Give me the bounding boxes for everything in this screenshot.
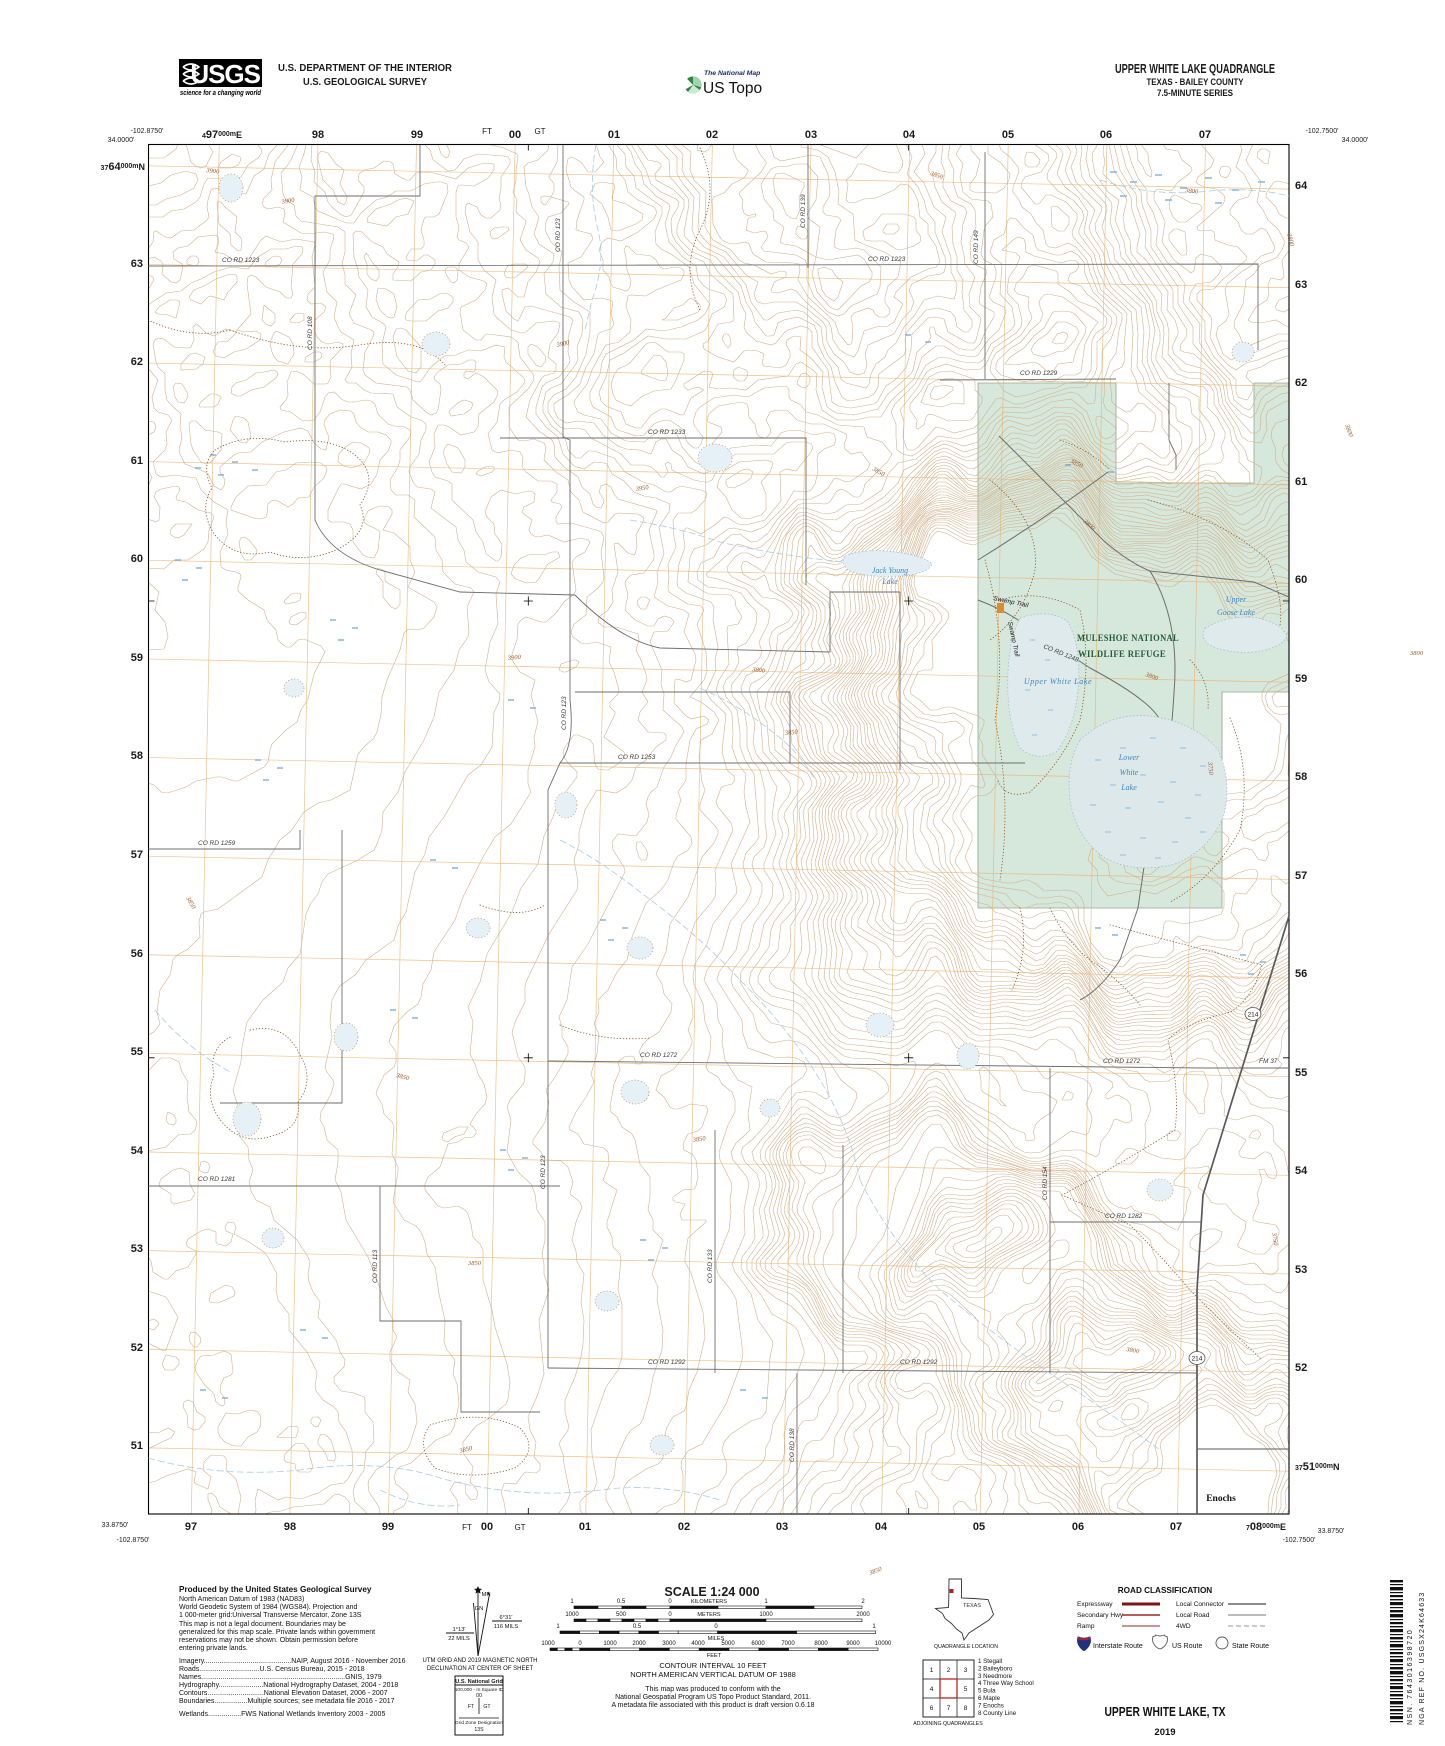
svg-text:58: 58 xyxy=(1295,771,1307,783)
svg-text:State Route: State Route xyxy=(1232,1643,1269,1650)
svg-text:0.5: 0.5 xyxy=(633,1624,642,1630)
svg-text:U.S. GEOLOGICAL SURVEY: U.S. GEOLOGICAL SURVEY xyxy=(303,77,427,88)
svg-text:05: 05 xyxy=(973,1521,985,1533)
svg-text:Ramp: Ramp xyxy=(1077,1623,1095,1630)
svg-text:CO RD 1282: CO RD 1282 xyxy=(1105,1213,1143,1220)
svg-text:CO RD 1292: CO RD 1292 xyxy=(648,1359,686,1366)
svg-text:North American Datum of 1983 (: North American Datum of 1983 (NAD83) xyxy=(179,1596,304,1603)
svg-text:1: 1 xyxy=(930,1667,934,1674)
svg-text:CO RD 113: CO RD 113 xyxy=(372,1250,379,1283)
svg-text:DECLINATION AT CENTER OF SHEET: DECLINATION AT CENTER OF SHEET xyxy=(427,1666,534,1672)
svg-text:1 000-meter grid:Universal Tra: 1 000-meter grid:Universal Transverse Me… xyxy=(179,1612,362,1619)
svg-text:CO RD 149: CO RD 149 xyxy=(973,230,980,264)
svg-text:00: 00 xyxy=(509,129,521,141)
svg-text:59: 59 xyxy=(1295,673,1307,685)
svg-text:500: 500 xyxy=(616,1612,627,1618)
svg-text:7.5-MINUTE SERIES: 7.5-MINUTE SERIES xyxy=(1157,88,1233,99)
svg-text:3800: 3800 xyxy=(1409,650,1424,657)
svg-text:07: 07 xyxy=(1170,1521,1182,1533)
svg-text:61: 61 xyxy=(131,455,143,467)
svg-text:06: 06 xyxy=(1072,1521,1084,1533)
svg-text:63: 63 xyxy=(131,258,143,270)
svg-text:Expressway: Expressway xyxy=(1077,1601,1113,1608)
svg-text:3850: 3850 xyxy=(467,1260,482,1267)
svg-text:33.8750': 33.8750' xyxy=(102,1522,129,1529)
svg-text:6°31': 6°31' xyxy=(499,1615,512,1621)
svg-text:8000: 8000 xyxy=(814,1641,828,1647)
svg-text:61: 61 xyxy=(1295,476,1307,488)
svg-text:64: 64 xyxy=(1295,180,1308,192)
svg-text:3: 3 xyxy=(964,1667,968,1674)
svg-text:FEET: FEET xyxy=(707,1653,722,1659)
svg-text:01: 01 xyxy=(579,1521,591,1533)
svg-text:6: 6 xyxy=(930,1705,934,1712)
svg-text:55: 55 xyxy=(131,1046,143,1058)
svg-text:This map was produced to confo: This map was produced to conform with th… xyxy=(645,1686,781,1693)
svg-text:57: 57 xyxy=(131,849,143,861)
svg-text:US Topo: US Topo xyxy=(703,80,762,97)
svg-text:CO RD 1259: CO RD 1259 xyxy=(198,840,236,847)
svg-text:4 Three Way School: 4 Three Way School xyxy=(978,1680,1034,1687)
svg-text:National Geospatial Program US: National Geospatial Program US Topo Prod… xyxy=(615,1694,811,1701)
svg-text:science for a changing world: science for a changing world xyxy=(180,88,261,97)
svg-text:GN: GN xyxy=(475,1606,484,1612)
svg-text:Boundaries.................Mul: Boundaries.................Multiple sour… xyxy=(179,1698,395,1705)
svg-text:3750: 3750 xyxy=(1206,761,1214,776)
svg-text:0.5: 0.5 xyxy=(617,1599,626,1605)
svg-text:54: 54 xyxy=(131,1145,144,1157)
svg-text:8 County Line: 8 County Line xyxy=(978,1710,1017,1717)
svg-text:Secondary Hwy: Secondary Hwy xyxy=(1077,1612,1124,1619)
svg-text:60: 60 xyxy=(131,553,143,565)
svg-text:51: 51 xyxy=(131,1440,143,1452)
svg-text:1000: 1000 xyxy=(541,1641,555,1647)
svg-text:CO RD 123: CO RD 123 xyxy=(540,1155,547,1189)
svg-text:Produced by the United States: Produced by the United States Geological… xyxy=(179,1585,372,1594)
svg-text:CO RD 133: CO RD 133 xyxy=(707,1249,714,1283)
svg-text:GT: GT xyxy=(483,1704,491,1710)
svg-text:METERS: METERS xyxy=(697,1612,721,1618)
svg-text:54: 54 xyxy=(1295,1165,1308,1177)
svg-text:55: 55 xyxy=(1295,1067,1307,1079)
svg-text:KILOMETERS: KILOMETERS xyxy=(691,1599,727,1605)
svg-text:CO RD 1233: CO RD 1233 xyxy=(648,429,686,436)
svg-text:3900: 3900 xyxy=(507,654,522,662)
svg-text:-102.7500': -102.7500' xyxy=(1306,128,1339,135)
svg-text:CO RD 138: CO RD 138 xyxy=(789,1428,796,1462)
svg-text:10000: 10000 xyxy=(875,1641,892,1647)
svg-text:3 Needmore: 3 Needmore xyxy=(978,1673,1013,1680)
svg-text:MULESHOE NATIONAL: MULESHOE NATIONAL xyxy=(1077,634,1179,644)
svg-text:TEXAS: TEXAS xyxy=(963,1603,981,1609)
svg-text:UTM GRID AND 2019 MAGNETIC NOR: UTM GRID AND 2019 MAGNETIC NORTH xyxy=(423,1658,538,1664)
svg-text:NSN. 7643016398720: NSN. 7643016398720 xyxy=(1407,1629,1414,1725)
svg-text:CO RD 108: CO RD 108 xyxy=(307,316,314,350)
svg-text:7: 7 xyxy=(947,1705,951,1712)
svg-text:2 Baileyboro: 2 Baileyboro xyxy=(978,1665,1013,1672)
svg-text:entering private lands.: entering private lands. xyxy=(179,1645,248,1652)
svg-text:99: 99 xyxy=(382,1521,394,1533)
svg-text:Interstate Route: Interstate Route xyxy=(1093,1643,1143,1650)
svg-text:The National Map: The National Map xyxy=(704,70,760,77)
svg-text:Hydrography...................: Hydrography.......................Nation… xyxy=(179,1682,398,1689)
svg-text:Local Road: Local Road xyxy=(1176,1612,1210,1619)
svg-text:CO RD 123: CO RD 123 xyxy=(555,218,562,252)
svg-text:4000: 4000 xyxy=(691,1641,705,1647)
svg-text:97: 97 xyxy=(185,1521,197,1533)
svg-text:reservations may not be shown.: reservations may not be shown. Obtain pe… xyxy=(179,1637,358,1644)
svg-text:98: 98 xyxy=(312,129,324,141)
svg-text:7000: 7000 xyxy=(781,1641,795,1647)
svg-text:-102.8750': -102.8750' xyxy=(117,1537,150,1544)
svg-text:NORTH AMERICAN VERTICAL DATUM: NORTH AMERICAN VERTICAL DATUM OF 1988 xyxy=(630,1670,796,1679)
svg-text:CO RD 1223: CO RD 1223 xyxy=(222,257,260,264)
svg-text:Enochs: Enochs xyxy=(1206,1494,1236,1504)
svg-text:02: 02 xyxy=(678,1521,690,1533)
svg-text:1°13': 1°13' xyxy=(452,1627,465,1633)
svg-text:214: 214 xyxy=(1192,1356,1203,1363)
svg-text:33.8750': 33.8750' xyxy=(1318,1528,1345,1535)
svg-text:06: 06 xyxy=(1100,129,1112,141)
svg-text:Wetlands.................FWS: Wetlands.................FWS National We… xyxy=(179,1711,385,1718)
svg-text:52: 52 xyxy=(1295,1362,1307,1374)
svg-text:9000: 9000 xyxy=(846,1641,860,1647)
svg-text:57: 57 xyxy=(1295,870,1307,882)
svg-text:3000: 3000 xyxy=(662,1641,676,1647)
svg-text:A metadata file associated wit: A metadata file associated with this pro… xyxy=(611,1702,814,1709)
svg-text:Jack Young: Jack Young xyxy=(872,566,908,575)
svg-text:UPPER WHITE LAKE, TX: UPPER WHITE LAKE, TX xyxy=(1105,1705,1227,1719)
svg-text:04: 04 xyxy=(903,129,916,141)
svg-text:USGS: USGS xyxy=(190,59,260,89)
svg-text:6 Maple: 6 Maple xyxy=(978,1695,1001,1702)
svg-text:60: 60 xyxy=(1295,574,1307,586)
svg-text:99: 99 xyxy=(411,129,423,141)
svg-text:Upper White Lake: Upper White Lake xyxy=(1024,677,1092,686)
svg-text:generalized for this map scale: generalized for this map scale. Private … xyxy=(179,1629,375,1636)
svg-text:7 Enochs: 7 Enochs xyxy=(978,1702,1004,1709)
svg-text:Grid Zone Designation: Grid Zone Designation xyxy=(455,1720,503,1726)
svg-text:CONTOUR INTERVAL 10 FEET: CONTOUR INTERVAL 10 FEET xyxy=(659,1661,767,1670)
svg-text:53: 53 xyxy=(1295,1264,1307,1276)
svg-text:Upper: Upper xyxy=(1226,595,1247,604)
svg-text:59: 59 xyxy=(131,652,143,664)
svg-text:GT: GT xyxy=(534,127,545,136)
svg-text:1000: 1000 xyxy=(565,1612,579,1618)
svg-text:56: 56 xyxy=(1295,968,1307,980)
svg-text:White: White xyxy=(1120,768,1139,777)
svg-text:NGA REF NO. USGSX24K64633: NGA REF NO. USGSX24K64633 xyxy=(1419,1592,1426,1726)
svg-text:World Geodetic System of 1984: World Geodetic System of 1984 (WGS84). P… xyxy=(179,1604,358,1611)
svg-text:Local Connector: Local Connector xyxy=(1176,1601,1225,1608)
svg-text:CO RD 1272: CO RD 1272 xyxy=(1103,1058,1141,1065)
svg-text:2019: 2019 xyxy=(1154,1727,1175,1738)
svg-text:CO RD 1272: CO RD 1272 xyxy=(640,1052,678,1059)
svg-text:CO RD 1223: CO RD 1223 xyxy=(868,256,906,263)
svg-text:UPPER WHITE LAKE QUADRANGLE: UPPER WHITE LAKE QUADRANGLE xyxy=(1115,61,1275,76)
svg-text:CO RD 139: CO RD 139 xyxy=(800,194,807,228)
svg-text:CO RD 1229: CO RD 1229 xyxy=(1020,370,1058,377)
svg-text:62: 62 xyxy=(131,356,143,368)
svg-text:2000: 2000 xyxy=(632,1641,646,1647)
svg-text:FT: FT xyxy=(468,1704,475,1710)
svg-text:TEXAS - BAILEY COUNTY: TEXAS - BAILEY COUNTY xyxy=(1147,77,1245,88)
svg-text:Imagery.......................: Imagery.................................… xyxy=(179,1658,406,1665)
svg-text:98: 98 xyxy=(284,1521,296,1533)
svg-text:116 MILS: 116 MILS xyxy=(494,1624,519,1630)
svg-text:5000: 5000 xyxy=(721,1641,735,1647)
svg-text:MN: MN xyxy=(481,1592,490,1598)
svg-text:34.0000': 34.0000' xyxy=(108,137,135,144)
svg-text:02: 02 xyxy=(706,129,718,141)
svg-text:62: 62 xyxy=(1295,377,1307,389)
svg-text:1000: 1000 xyxy=(759,1612,773,1618)
svg-text:-102.7500': -102.7500' xyxy=(1283,1537,1316,1544)
svg-text:CO RD 123: CO RD 123 xyxy=(561,696,568,730)
svg-text:Roads.........................: Roads...............................U.S.… xyxy=(179,1666,365,1673)
svg-text:00: 00 xyxy=(481,1521,493,1533)
svg-text:Names.........................: Names...................................… xyxy=(179,1674,382,1681)
svg-text:8: 8 xyxy=(964,1705,968,1712)
svg-text:This map is not a legal docume: This map is not a legal document. Bounda… xyxy=(179,1621,346,1628)
svg-text:Goose Lake: Goose Lake xyxy=(1217,608,1255,617)
svg-text:FT: FT xyxy=(482,127,492,136)
svg-text:Lake: Lake xyxy=(1120,783,1137,792)
svg-text:52: 52 xyxy=(131,1342,143,1354)
svg-text:03: 03 xyxy=(776,1521,788,1533)
svg-text:07: 07 xyxy=(1199,129,1211,141)
svg-text:-102.8750': -102.8750' xyxy=(131,128,164,135)
svg-text:5: 5 xyxy=(964,1686,968,1693)
svg-text:ROAD CLASSIFICATION: ROAD CLASSIFICATION xyxy=(1118,1586,1213,1595)
svg-text:Lower: Lower xyxy=(1118,753,1140,762)
svg-text:CO RD 154: CO RD 154 xyxy=(1042,1166,1049,1200)
svg-text:6000: 6000 xyxy=(751,1641,765,1647)
svg-text:2: 2 xyxy=(947,1667,951,1674)
svg-text:4WD: 4WD xyxy=(1176,1623,1191,1630)
svg-text:CO RD 1292: CO RD 1292 xyxy=(900,1359,938,1366)
svg-text:WILDLIFE REFUGE: WILDLIFE REFUGE xyxy=(1078,650,1166,660)
svg-text:FM 37: FM 37 xyxy=(1259,1058,1278,1065)
svg-text:05: 05 xyxy=(1002,129,1014,141)
svg-text:U.S. DEPARTMENT OF THE INTERIO: U.S. DEPARTMENT OF THE INTERIOR xyxy=(278,63,453,74)
svg-text:63: 63 xyxy=(1295,279,1307,291)
svg-text:03: 03 xyxy=(805,129,817,141)
svg-text:56: 56 xyxy=(131,948,143,960)
svg-text:FT: FT xyxy=(462,1523,472,1532)
svg-text:CO RD 1281: CO RD 1281 xyxy=(198,1176,236,1183)
svg-text:04: 04 xyxy=(875,1521,888,1533)
svg-text:214: 214 xyxy=(1248,1012,1259,1019)
svg-text:2000: 2000 xyxy=(856,1612,870,1618)
svg-text:SCALE 1:24 000: SCALE 1:24 000 xyxy=(664,1585,759,1599)
svg-text:ADJOINING QUADRANGLES: ADJOINING QUADRANGLES xyxy=(913,1721,983,1727)
svg-text:GT: GT xyxy=(514,1523,525,1532)
svg-text:US Route: US Route xyxy=(1172,1643,1202,1650)
svg-text:Contours......................: Contours.............................Nat… xyxy=(179,1690,388,1697)
svg-text:01: 01 xyxy=(608,129,620,141)
svg-text:58: 58 xyxy=(131,750,143,762)
svg-text:1 Stegall: 1 Stegall xyxy=(978,1658,1002,1665)
svg-text:5 Bula: 5 Bula xyxy=(978,1688,996,1695)
svg-text:Lake: Lake xyxy=(881,577,898,586)
svg-text:QUADRANGLE LOCATION: QUADRANGLE LOCATION xyxy=(934,1644,998,1650)
svg-text:53: 53 xyxy=(131,1243,143,1255)
svg-text:U.S. National Grid: U.S. National Grid xyxy=(455,1679,503,1685)
svg-text:34.0000': 34.0000' xyxy=(1342,137,1369,144)
svg-text:22 MILS: 22 MILS xyxy=(448,1636,470,1642)
svg-text:4: 4 xyxy=(930,1686,934,1693)
svg-text:13S: 13S xyxy=(474,1727,484,1733)
svg-text:CO RD 1253: CO RD 1253 xyxy=(618,754,656,761)
svg-text:1000: 1000 xyxy=(603,1641,617,1647)
